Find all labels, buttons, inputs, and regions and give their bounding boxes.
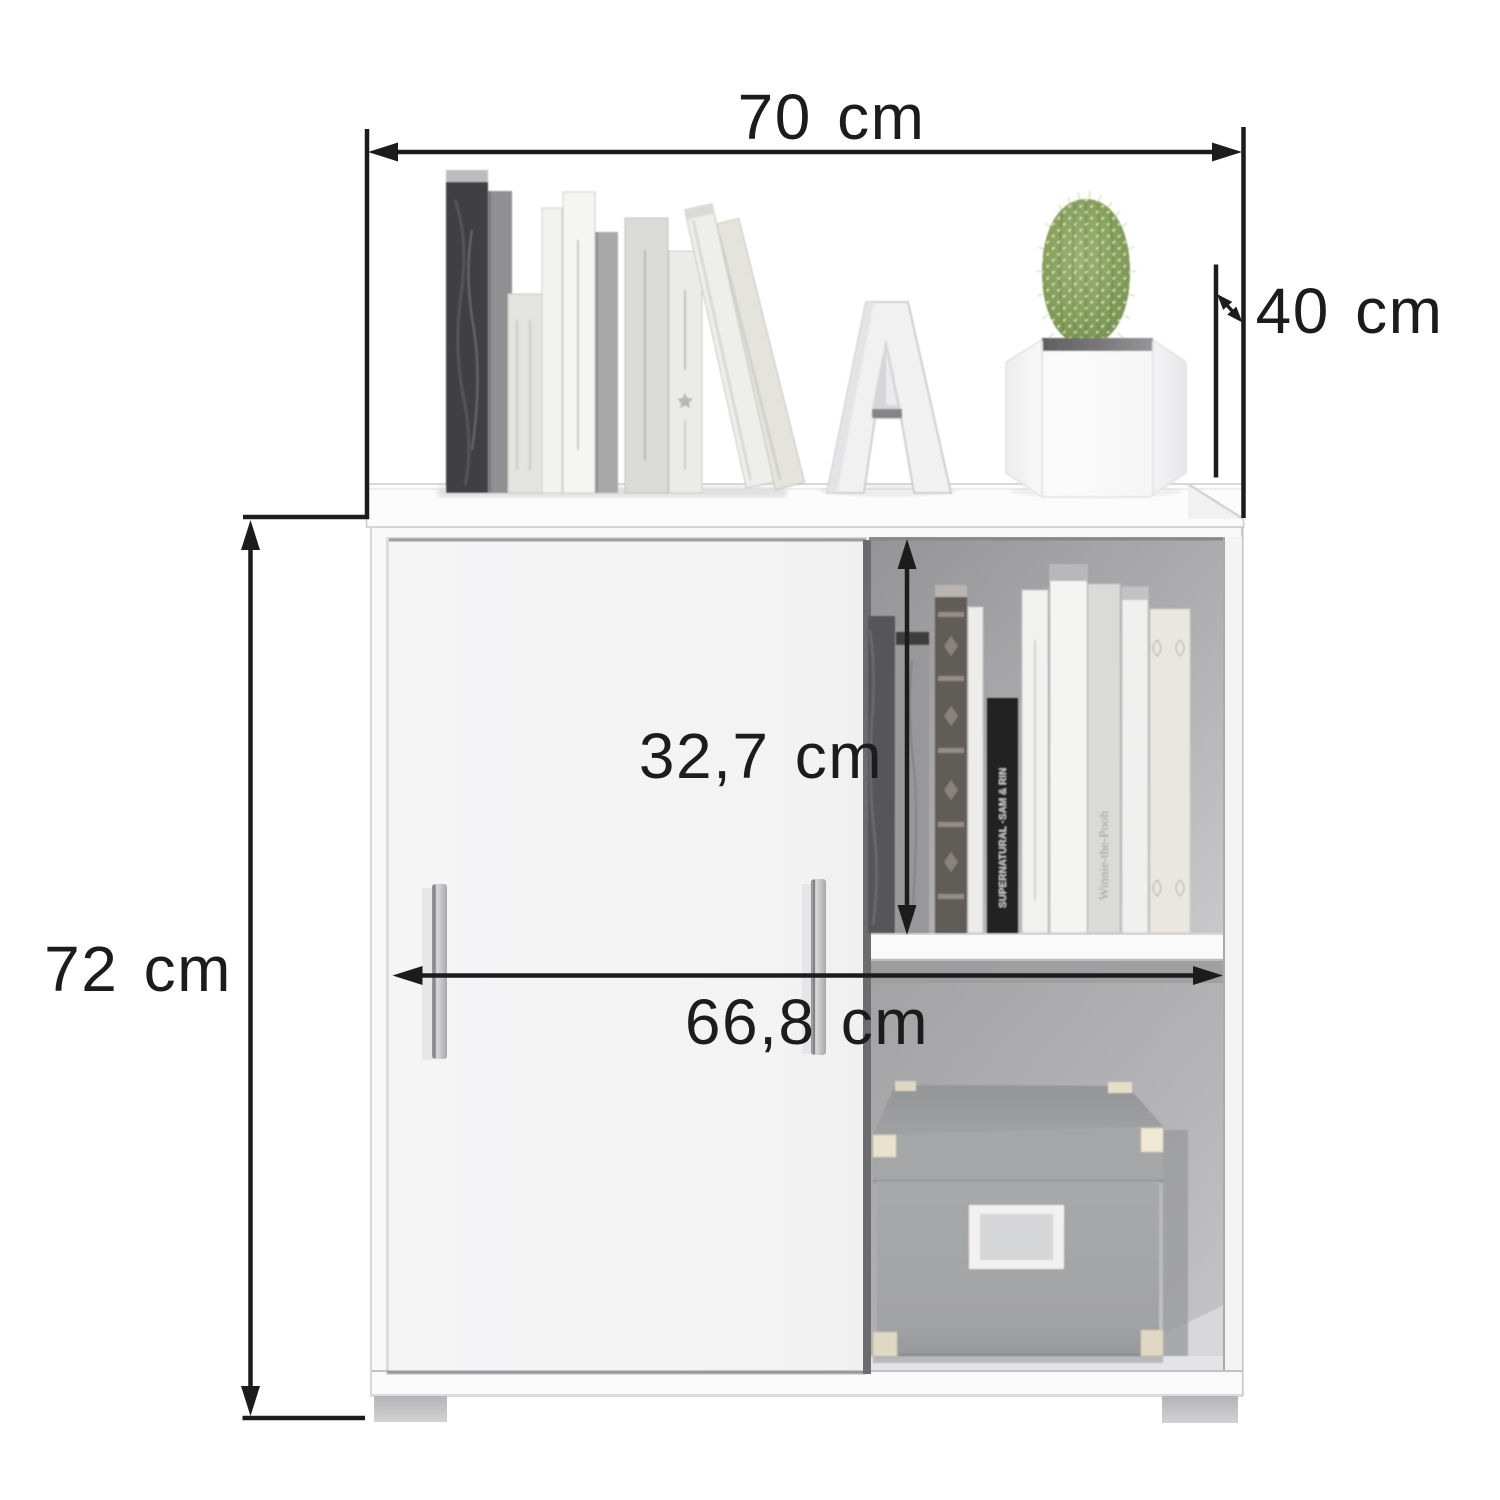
svg-text:Winnie-the-Pooh: Winnie-the-Pooh	[1096, 810, 1111, 900]
svg-text:66,8 cm: 66,8 cm	[685, 986, 929, 1058]
svg-text:32,7 cm: 32,7 cm	[639, 720, 883, 792]
svg-text:SUPERNATURAL ·SAM & RIN: SUPERNATURAL ·SAM & RIN	[998, 768, 1009, 908]
